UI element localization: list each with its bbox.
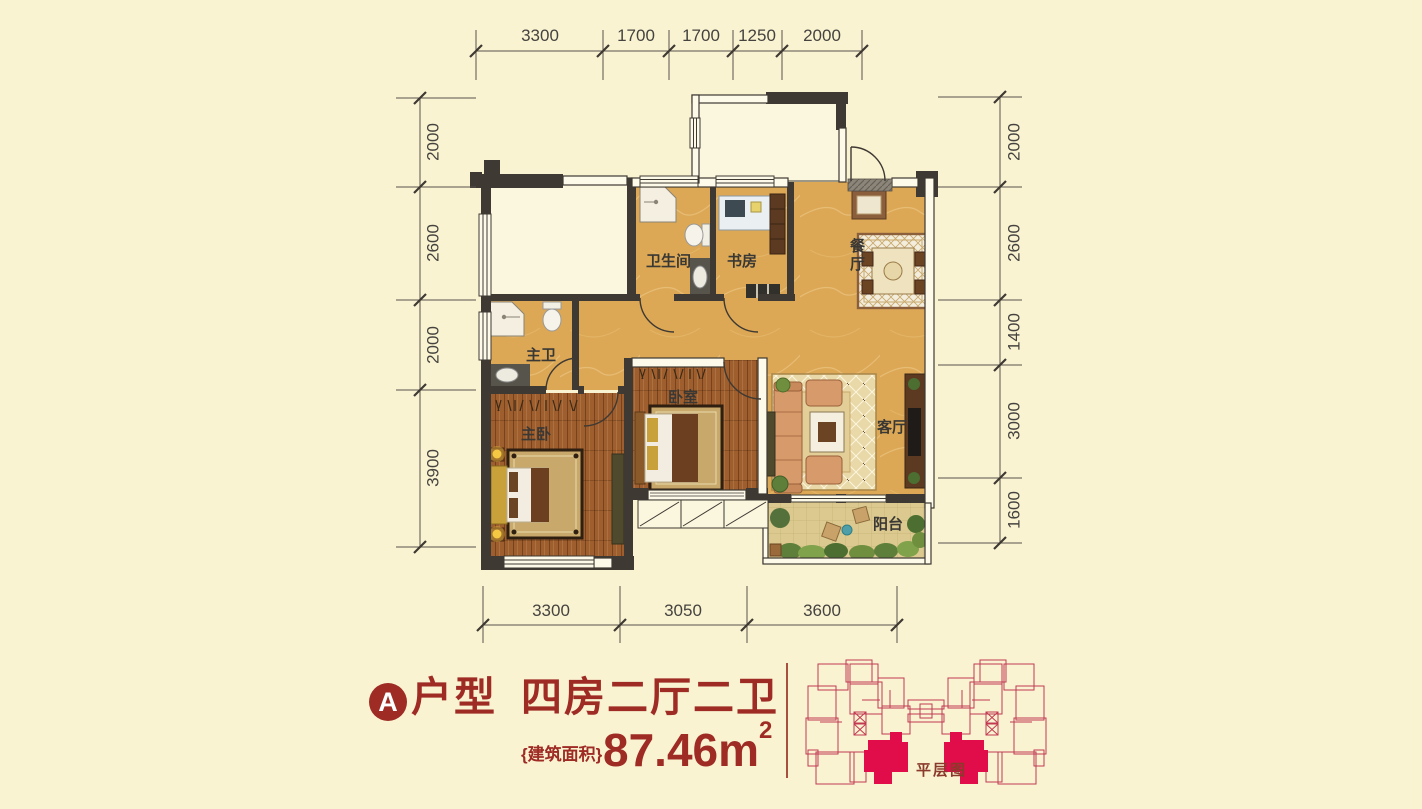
- room-label-bedroom: 卧室: [668, 390, 698, 405]
- bay-window: [638, 500, 768, 528]
- unit-type-badge: A: [369, 683, 407, 721]
- vertical-divider: [786, 663, 788, 778]
- window-court: [690, 118, 700, 148]
- dim-right-1: 2000: [1006, 123, 1023, 161]
- bedroom-furniture: [635, 406, 722, 490]
- dim-bottom-1: 3300: [532, 602, 570, 619]
- dim-left-3: 2000: [425, 326, 442, 364]
- floorplan-page: 卫生间 书房 餐厅 主卫 主卧 卧室 客厅 阳台 3300 1700 1700 …: [0, 0, 1422, 809]
- room-label-living: 客厅: [877, 420, 907, 435]
- site-plan-label: 平层图: [916, 759, 967, 780]
- window-study-top: [716, 176, 774, 187]
- area-number: 87.46m: [603, 724, 759, 776]
- dim-right-5: 1600: [1006, 491, 1023, 529]
- dim-bottom-2: 3050: [664, 602, 702, 619]
- dim-top-3: 1700: [682, 27, 720, 44]
- room-label-balcony: 阳台: [873, 517, 903, 532]
- window-left-top: [479, 214, 491, 296]
- room-label-master-bedroom: 主卧: [521, 427, 551, 442]
- window-master-bath: [479, 312, 491, 360]
- room-label-master-bath: 主卫: [526, 348, 556, 363]
- sliding-door: [791, 495, 886, 502]
- area-value: 87.46m2: [603, 727, 772, 773]
- dim-top-2: 1700: [617, 27, 655, 44]
- unlabeled-room: [486, 178, 632, 298]
- room-label-dining: 餐厅: [849, 238, 864, 274]
- dim-top-4: 1250: [738, 27, 776, 44]
- unit-type-label: 户型: [411, 677, 497, 718]
- dim-top-5: 2000: [803, 27, 841, 44]
- window-master-bottom: [504, 556, 594, 568]
- area-exponent: 2: [759, 717, 772, 744]
- dim-right-2: 2600: [1006, 224, 1023, 262]
- window-bathroom-top: [640, 176, 698, 187]
- dim-right-4: 3000: [1006, 402, 1023, 440]
- entry-court: [692, 99, 844, 181]
- area-prefix-label: {建筑面积}: [521, 746, 602, 763]
- dim-right-3: 1400: [1006, 313, 1023, 351]
- dim-left-2: 2600: [425, 224, 442, 262]
- room-label-bathroom: 卫生间: [646, 254, 691, 269]
- unit-layout-label: 四房二厅二卫: [521, 677, 779, 718]
- dim-left-1: 2000: [425, 123, 442, 161]
- room-label-study: 书房: [727, 254, 757, 269]
- dim-top-1: 3300: [521, 27, 559, 44]
- dim-bottom-3: 3600: [803, 602, 841, 619]
- dim-left-4: 3900: [425, 449, 442, 487]
